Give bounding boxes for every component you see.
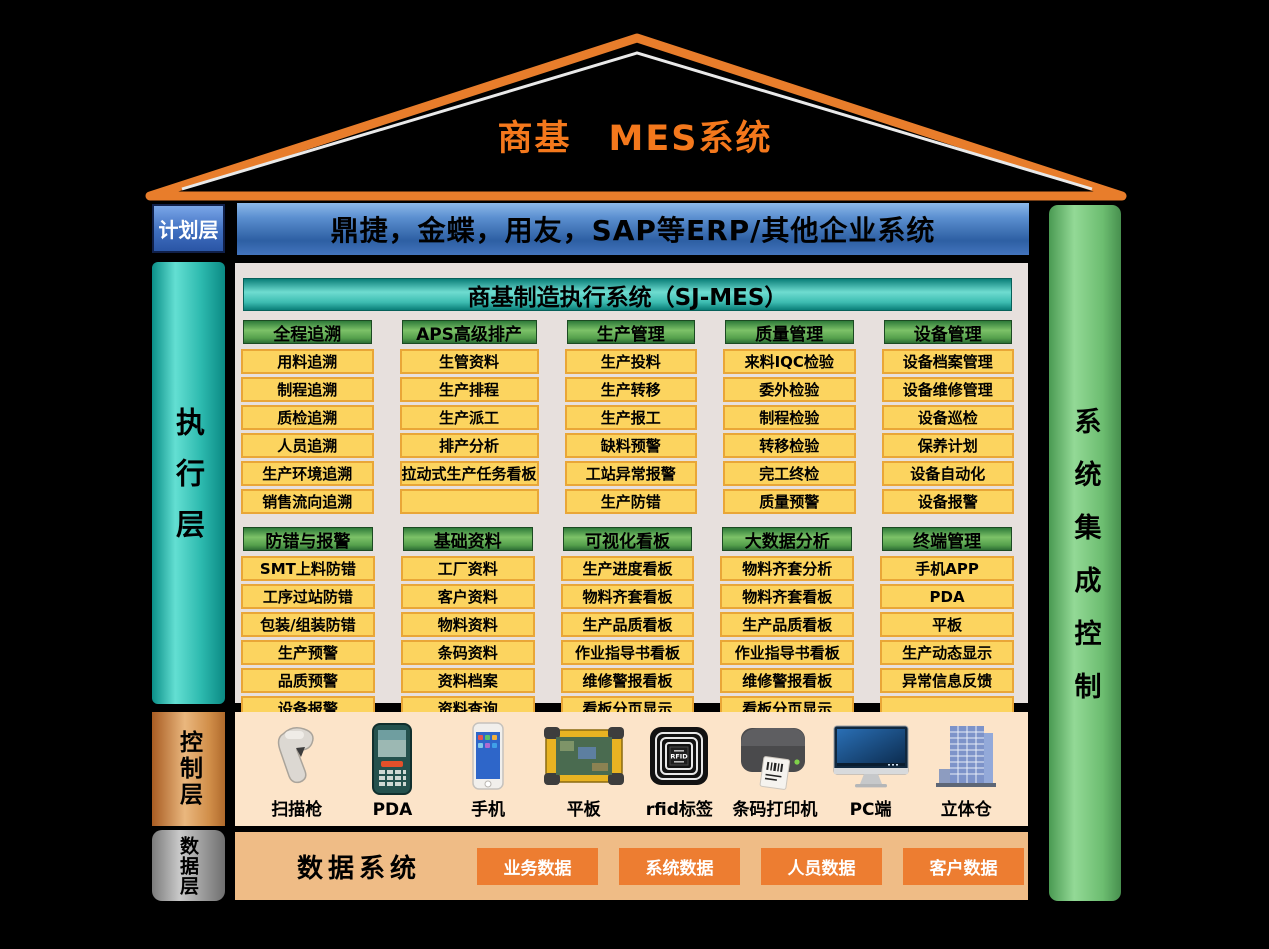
mes-item: 生产预警 xyxy=(241,640,375,665)
label-printer-icon xyxy=(731,717,819,795)
mes-item: 完工终检 xyxy=(723,461,856,486)
mes-item: PDA xyxy=(880,584,1014,609)
mes-item: 维修警报看板 xyxy=(561,668,695,693)
mes-item: 生产进度看板 xyxy=(561,556,695,581)
mes-column: 设备管理设备档案管理设备维修管理设备巡检保养计划设备自动化设备报警 xyxy=(882,320,1015,514)
smartphone-icon xyxy=(470,717,506,795)
data-box: 客户数据 xyxy=(903,848,1024,885)
mes-item: 保养计划 xyxy=(882,433,1015,458)
mes-column-header: 终端管理 xyxy=(882,527,1012,551)
mes-item: 生产排程 xyxy=(400,377,539,402)
erp-systems-text: 鼎捷，金蝶，用友，SAP等ERP/其他企业系统 xyxy=(331,209,936,249)
mes-column-items: SMT上料防错工序过站防错包装/组装防错生产预警品质预警设备报警 xyxy=(241,556,375,721)
device-label: 扫描枪 xyxy=(271,795,322,820)
mes-item: 工序过站防错 xyxy=(241,584,375,609)
svg-text:RFID: RFID xyxy=(671,753,689,761)
device-label: PDA xyxy=(373,800,413,820)
mes-column-header: APS高级排产 xyxy=(402,320,537,344)
mes-column-items: 手机APPPDA平板生产动态显示异常信息反馈 xyxy=(880,556,1014,721)
mes-column-items: 生产进度看板物料齐套看板生产品质看板作业指导书看板维修警报看板看板分页显示 xyxy=(561,556,695,721)
mes-column: 可视化看板生产进度看板物料齐套看板生产品质看板作业指导书看板维修警报看板看板分页… xyxy=(561,527,695,721)
mes-item: 生产防错 xyxy=(565,489,698,514)
mes-item: 物料齐套看板 xyxy=(561,584,695,609)
mes-column: 全程追溯用料追溯制程追溯质检追溯人员追溯生产环境追溯销售流向追溯 xyxy=(241,320,374,514)
mes-item: 品质预警 xyxy=(241,668,375,693)
mes-item: 物料齐套看板 xyxy=(720,584,854,609)
data-boxes: 业务数据系统数据人员数据客户数据 xyxy=(477,848,1024,885)
device-label: 手机 xyxy=(471,795,505,820)
mes-item: 平板 xyxy=(880,612,1014,637)
data-layer-label: 数据层 xyxy=(152,830,225,901)
mes-item: 生产投料 xyxy=(565,349,698,374)
mes-column-items: 生管资料生产排程生产派工排产分析拉动式生产任务看板 xyxy=(400,349,539,514)
mes-item: 生产转移 xyxy=(565,377,698,402)
execution-panel: 商基制造执行系统（SJ-MES） 全程追溯用料追溯制程追溯质检追溯人员追溯生产环… xyxy=(235,263,1028,703)
mes-column: 生产管理生产投料生产转移生产报工缺料预警工站异常报警生产防错 xyxy=(565,320,698,514)
device-label: 立体仓 xyxy=(941,795,992,820)
execution-layer-label: 执行层 xyxy=(152,262,225,704)
mes-row: 全程追溯用料追溯制程追溯质检追溯人员追溯生产环境追溯销售流向追溯APS高级排产生… xyxy=(241,320,1014,514)
mes-item: 生产品质看板 xyxy=(720,612,854,637)
mes-row: 防错与报警SMT上料防错工序过站防错包装/组装防错生产预警品质预警设备报警基础资… xyxy=(241,527,1014,721)
mes-item: 来料IQC检验 xyxy=(723,349,856,374)
mes-item xyxy=(400,489,539,514)
mes-item: 设备巡检 xyxy=(882,405,1015,430)
mes-column: 防错与报警SMT上料防错工序过站防错包装/组装防错生产预警品质预警设备报警 xyxy=(241,527,375,721)
mes-column-header: 大数据分析 xyxy=(722,527,852,551)
mes-item: 制程追溯 xyxy=(241,377,374,402)
sjmes-header: 商基制造执行系统（SJ-MES） xyxy=(243,278,1012,311)
data-box: 人员数据 xyxy=(761,848,882,885)
system-integration-bar: 系统集成控制 xyxy=(1049,205,1121,901)
device-label: rfid标签 xyxy=(646,795,713,820)
rfid-tag-icon: RFID xyxy=(648,717,710,795)
mes-item: 生产环境追溯 xyxy=(241,461,374,486)
mes-rows: 全程追溯用料追溯制程追溯质检追溯人员追溯生产环境追溯销售流向追溯APS高级排产生… xyxy=(241,320,1014,691)
mes-item: SMT上料防错 xyxy=(241,556,375,581)
mes-item: 异常信息反馈 xyxy=(880,668,1014,693)
plan-layer-label-text: 计划层 xyxy=(159,214,219,243)
device-rfid-tag: RFIDrfid标签 xyxy=(632,717,728,822)
mes-item: 质量预警 xyxy=(723,489,856,514)
mes-item: 质检追溯 xyxy=(241,405,374,430)
mes-column-header: 可视化看板 xyxy=(563,527,693,551)
device-pda: PDA xyxy=(345,717,441,822)
mes-column-header: 生产管理 xyxy=(567,320,696,344)
mes-item: 用料追溯 xyxy=(241,349,374,374)
execution-layer-label-text: 执行层 xyxy=(168,407,210,560)
mes-item: 工站异常报警 xyxy=(565,461,698,486)
mes-item: 销售流向追溯 xyxy=(241,489,374,514)
mes-item: 生产派工 xyxy=(400,405,539,430)
mes-item: 拉动式生产任务看板 xyxy=(400,461,539,486)
mes-column-header: 设备管理 xyxy=(884,320,1013,344)
device-warehouse: 立体仓 xyxy=(918,717,1014,822)
mes-item: 生产品质看板 xyxy=(561,612,695,637)
device-label: 平板 xyxy=(567,795,601,820)
mes-item: 包装/组装防错 xyxy=(241,612,375,637)
control-layer-label: 控制层 xyxy=(152,712,225,826)
mes-item: 人员追溯 xyxy=(241,433,374,458)
mes-item: 作业指导书看板 xyxy=(561,640,695,665)
mes-item: 生管资料 xyxy=(400,349,539,374)
control-layer-label-text: 控制层 xyxy=(172,730,206,808)
tablet-icon xyxy=(542,717,626,795)
mes-column-items: 工厂资料客户资料物料资料条码资料资料档案资料查询 xyxy=(401,556,535,721)
device-tablet: 平板 xyxy=(536,717,632,822)
mes-item: 物料资料 xyxy=(401,612,535,637)
data-box: 系统数据 xyxy=(619,848,740,885)
mes-column-header: 防错与报警 xyxy=(243,527,373,551)
mes-column: 质量管理来料IQC检验委外检验制程检验转移检验完工终检质量预警 xyxy=(723,320,856,514)
sjmes-header-text: 商基制造执行系统（SJ-MES） xyxy=(468,278,788,312)
device-barcode-scanner: 扫描枪 xyxy=(249,717,345,822)
mes-item: 作业指导书看板 xyxy=(720,640,854,665)
data-layer-label-text: 数据层 xyxy=(175,836,202,896)
mes-column-items: 用料追溯制程追溯质检追溯人员追溯生产环境追溯销售流向追溯 xyxy=(241,349,374,514)
erp-systems-bar: 鼎捷，金蝶，用友，SAP等ERP/其他企业系统 xyxy=(237,203,1029,255)
mes-column-items: 设备档案管理设备维修管理设备巡检保养计划设备自动化设备报警 xyxy=(882,349,1015,514)
mes-item: 排产分析 xyxy=(400,433,539,458)
mes-column-header: 基础资料 xyxy=(403,527,533,551)
mes-item: 工厂资料 xyxy=(401,556,535,581)
mes-column: 终端管理手机APPPDA平板生产动态显示异常信息反馈 xyxy=(880,527,1014,721)
mes-architecture-diagram: 商基 MES系统 计划层 鼎捷，金蝶，用友，SAP等ERP/其他企业系统 系统集… xyxy=(0,0,1269,949)
device-pc-monitor: PC端 xyxy=(823,717,919,822)
device-row: 扫描枪PDA手机平板RFIDrfid标签条码打印机PC端立体仓 xyxy=(235,712,1028,826)
device-label: 条码打印机 xyxy=(732,795,817,820)
mes-item: 转移检验 xyxy=(723,433,856,458)
mes-item: 设备档案管理 xyxy=(882,349,1015,374)
mes-item: 设备报警 xyxy=(882,489,1015,514)
mes-item: 手机APP xyxy=(880,556,1014,581)
mes-column-items: 物料齐套分析物料齐套看板生产品质看板作业指导书看板维修警报看板看板分页显示 xyxy=(720,556,854,721)
system-integration-text: 系统集成控制 xyxy=(1066,381,1105,725)
device-smartphone: 手机 xyxy=(440,717,536,822)
device-label-printer: 条码打印机 xyxy=(727,717,823,822)
mes-item: 委外检验 xyxy=(723,377,856,402)
mes-item: 客户资料 xyxy=(401,584,535,609)
mes-column: 大数据分析物料齐套分析物料齐套看板生产品质看板作业指导书看板维修警报看板看板分页… xyxy=(720,527,854,721)
mes-item: 制程检验 xyxy=(723,405,856,430)
pda-icon xyxy=(369,717,415,800)
mes-item: 缺料预警 xyxy=(565,433,698,458)
diagram-title: 商基 MES系统 xyxy=(420,110,850,161)
data-panel: 数据系统 业务数据系统数据人员数据客户数据 xyxy=(235,832,1028,900)
mes-item: 设备自动化 xyxy=(882,461,1015,486)
warehouse-icon xyxy=(930,717,1002,795)
barcode-scanner-icon xyxy=(268,717,326,795)
data-box: 业务数据 xyxy=(477,848,598,885)
mes-item: 生产动态显示 xyxy=(880,640,1014,665)
device-label: PC端 xyxy=(850,795,892,820)
pc-monitor-icon xyxy=(830,717,912,795)
data-system-title: 数据系统 xyxy=(297,848,421,885)
mes-item: 设备维修管理 xyxy=(882,377,1015,402)
mes-item: 条码资料 xyxy=(401,640,535,665)
mes-column: APS高级排产生管资料生产排程生产派工排产分析拉动式生产任务看板 xyxy=(400,320,539,514)
mes-item: 物料齐套分析 xyxy=(720,556,854,581)
mes-column-header: 全程追溯 xyxy=(243,320,372,344)
mes-column: 基础资料工厂资料客户资料物料资料条码资料资料档案资料查询 xyxy=(401,527,535,721)
mes-item: 生产报工 xyxy=(565,405,698,430)
plan-layer-label: 计划层 xyxy=(152,204,225,253)
mes-column-items: 生产投料生产转移生产报工缺料预警工站异常报警生产防错 xyxy=(565,349,698,514)
mes-item: 维修警报看板 xyxy=(720,668,854,693)
mes-column-header: 质量管理 xyxy=(725,320,854,344)
mes-item: 资料档案 xyxy=(401,668,535,693)
mes-column-items: 来料IQC检验委外检验制程检验转移检验完工终检质量预警 xyxy=(723,349,856,514)
